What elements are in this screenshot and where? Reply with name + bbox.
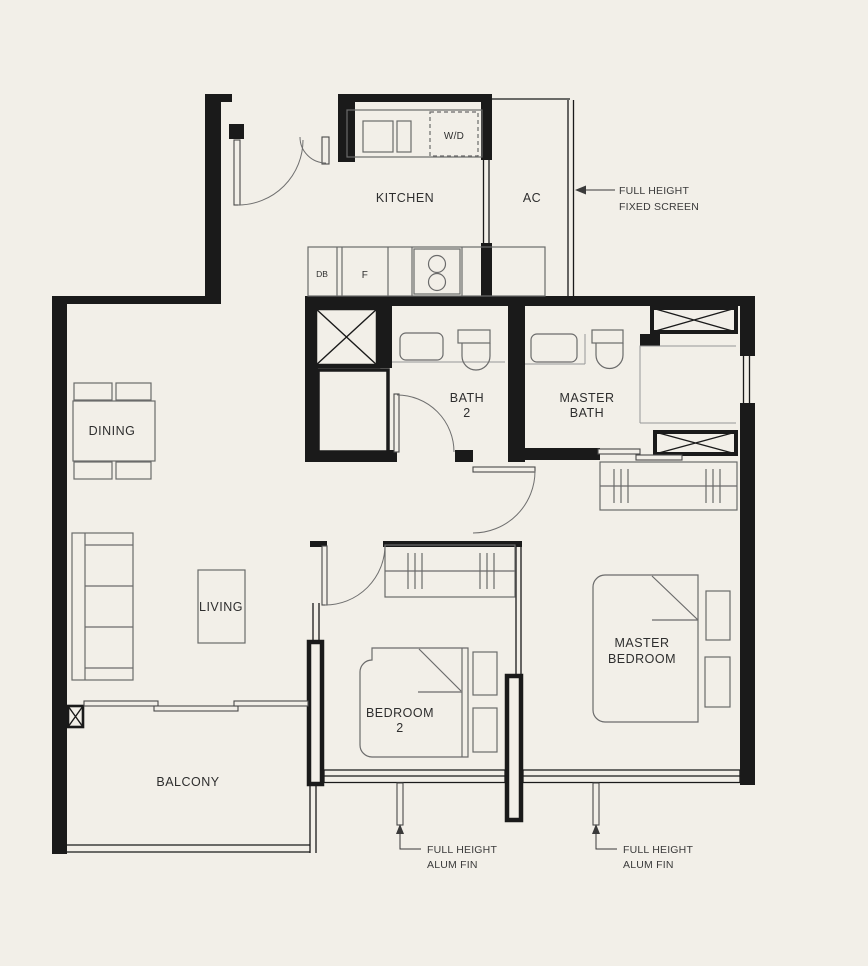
bath2-door-leaf	[394, 394, 399, 452]
floor-plan-page: KITCHEN AC W/D DB F BATH 2 MASTER BATH D…	[0, 0, 868, 966]
master-bath-label-line2: BATH	[570, 406, 604, 420]
balcony-label: BALCONY	[156, 775, 219, 789]
master-bedroom-label-line2: BEDROOM	[608, 652, 676, 666]
fridge-label: F	[362, 270, 368, 281]
master-bath-slider-panel	[598, 449, 640, 454]
master-bedroom-door-leaf	[473, 467, 535, 472]
balcony-slider-panel	[234, 701, 308, 706]
alum-fin-right	[593, 783, 599, 825]
household-shelter	[318, 370, 388, 452]
washer-dryer-label: W/D	[444, 131, 464, 142]
fixed-screen-note-line2: FIXED SCREEN	[619, 201, 699, 213]
living-balcony-column	[309, 642, 322, 784]
master-bedroom-label-line1: MASTER	[614, 636, 669, 650]
ac-label: AC	[523, 191, 541, 205]
balcony-slider-panel	[84, 701, 158, 706]
master-bath-slider-panel	[636, 455, 682, 460]
bedroom2-label-line1: BEDROOM	[366, 706, 434, 720]
bedroom2-label-line2: 2	[396, 721, 403, 735]
right-window-gap	[740, 356, 755, 403]
floor-plan: KITCHEN AC W/D DB F BATH 2 MASTER BATH D…	[0, 0, 868, 966]
alum-fin-left-note-line2: ALUM FIN	[427, 859, 478, 871]
fixed-screen-note-line1: FULL HEIGHT	[619, 185, 689, 197]
entry-door-leaf-small	[322, 137, 329, 164]
bath2-label-line2: 2	[463, 406, 470, 420]
alum-fin-left-note-line1: FULL HEIGHT	[427, 844, 497, 856]
plan-background	[0, 0, 868, 966]
db-label: DB	[316, 269, 328, 279]
bedroom2-door-leaf	[322, 546, 327, 605]
bedroom-divider-column	[507, 676, 521, 820]
alum-fin-right-note-line2: ALUM FIN	[623, 859, 674, 871]
kitchen-label: KITCHEN	[376, 191, 434, 205]
master-bath-label-line1: MASTER	[559, 391, 614, 405]
alum-fin-left	[397, 783, 403, 825]
balcony-slider-panel	[154, 706, 238, 711]
bath2-label-line1: BATH	[450, 391, 484, 405]
entry-door-leaf	[234, 140, 240, 205]
alum-fin-right-note-line1: FULL HEIGHT	[623, 844, 693, 856]
dining-label: DINING	[89, 424, 136, 438]
living-label: LIVING	[199, 600, 243, 614]
